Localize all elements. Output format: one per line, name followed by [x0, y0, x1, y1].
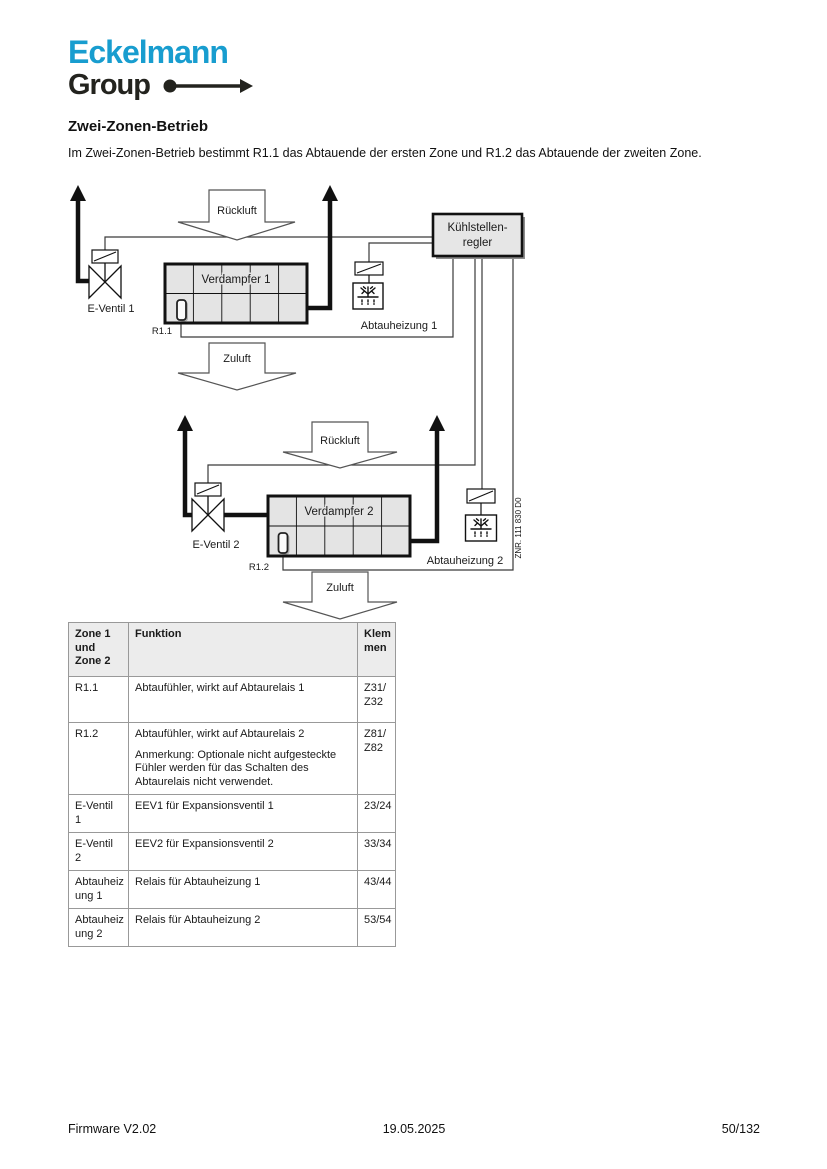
- col-header-funktion: Funktion: [129, 623, 358, 677]
- cell-funktion: Relais für Abtauheizung 1: [129, 871, 358, 909]
- cell-zone: Abtauheiz ung 2: [69, 909, 129, 947]
- zone1-left-pipe: [70, 185, 89, 281]
- cell-klemmen: Z31/ Z32: [358, 677, 396, 723]
- manual-page: { "logo": { "line1": "Eckelmann", "line2…: [0, 0, 827, 1169]
- col-header-klemmen: Klem men: [358, 623, 396, 677]
- logo-group-text: Group: [68, 71, 150, 100]
- zone1-right-pipe: [306, 185, 338, 308]
- wire-heater1: [369, 243, 433, 262]
- zone1-evaporator-label: Verdampfer 1: [201, 274, 270, 286]
- cell-zone: R1.2: [69, 723, 129, 795]
- table-header-row: Zone 1 und Zone 2 Funktion Klem men: [69, 623, 396, 677]
- zone2-expansion-valve-icon: [192, 483, 224, 531]
- cell-zone: R1.1: [69, 677, 129, 723]
- logo-eckelmann-text: Eckelmann: [68, 36, 254, 68]
- case-controller-box: Kühlstellen- regler: [433, 214, 525, 259]
- cell-klemmen: 33/34: [358, 833, 396, 871]
- table-row: Abtauheiz ung 1 Relais für Abtauheizung …: [69, 871, 396, 909]
- cell-klemmen: 23/24: [358, 795, 396, 833]
- zone2-evaporator: Verdampfer 2: [268, 496, 410, 556]
- zone1-return-air-label: Rückluft: [217, 205, 257, 217]
- zone2-supply-air-arrow: Zuluft: [283, 572, 397, 619]
- controller-label-line2: regler: [463, 237, 493, 249]
- zone1-supply-air-arrow: Zuluft: [178, 343, 296, 390]
- two-zone-diagram-svg: E-Ventil 1 Verdampfer 1 R1.1 Rückluft Zu…: [55, 182, 545, 628]
- zone1-defrost-sensor-icon: [177, 300, 186, 320]
- funktion-text: Abtaufühler, wirkt auf Abtaurelais 2: [135, 728, 351, 742]
- funktion-text: Relais für Abtauheizung 2: [135, 914, 351, 928]
- footer-date: 19.05.2025: [299, 1122, 530, 1136]
- table-row: Abtauheiz ung 2 Relais für Abtauheizung …: [69, 909, 396, 947]
- cell-funktion: EEV2 für Expansionsventil 2: [129, 833, 358, 871]
- two-zone-diagram: E-Ventil 1 Verdampfer 1 R1.1 Rückluft Zu…: [55, 182, 545, 628]
- cell-zone: E-Ventil 2: [69, 833, 129, 871]
- table-row: R1.2 Abtaufühler, wirkt auf Abtaurelais …: [69, 723, 396, 795]
- section-title: Zwei-Zonen-Betrieb: [68, 118, 208, 135]
- cell-klemmen: 53/54: [358, 909, 396, 947]
- cell-funktion: Relais für Abtauheizung 2: [129, 909, 358, 947]
- zone2-right-pipe: [409, 415, 445, 541]
- col-header-zone: Zone 1 und Zone 2: [69, 623, 129, 677]
- cell-klemmen: Z81/ Z82: [358, 723, 396, 795]
- zone1-sensor-label: R1.1: [152, 326, 172, 337]
- cell-funktion: EEV1 für Expansionsventil 1: [129, 795, 358, 833]
- zone2-sensor-label: R1.2: [249, 562, 269, 573]
- zone1-return-air-arrow: Rückluft: [178, 190, 295, 240]
- terminal-assignment-table: Zone 1 und Zone 2 Funktion Klem men R1.1…: [68, 622, 396, 947]
- table-row: R1.1 Abtaufühler, wirkt auf Abtaurelais …: [69, 677, 396, 723]
- funktion-text: Abtaufühler, wirkt auf Abtaurelais 1: [135, 682, 351, 696]
- cell-zone: E-Ventil 1: [69, 795, 129, 833]
- zone2-valve-label: E-Ventil 2: [192, 539, 239, 551]
- zone2-return-air-label: Rückluft: [320, 435, 360, 447]
- zone1-supply-air-label: Zuluft: [223, 353, 251, 365]
- pipe-arrow-up-icon: [322, 185, 338, 201]
- zone2-evaporator-label: Verdampfer 2: [304, 506, 373, 518]
- page-footer: Firmware V2.02 19.05.2025 50/132: [68, 1122, 760, 1136]
- zone1-heater-label: Abtauheizung 1: [361, 320, 437, 332]
- pipe-arrow-up-icon: [70, 185, 86, 201]
- footer-page-number: 50/132: [529, 1122, 760, 1136]
- zone2-return-air-arrow: Rückluft: [283, 422, 397, 468]
- company-logo: Eckelmann Group: [68, 36, 254, 100]
- funktion-note: Anmerkung: Optionale nicht aufgesteckte …: [135, 749, 351, 790]
- funktion-text: EEV1 für Expansionsventil 1: [135, 800, 351, 814]
- zone2-heater-label: Abtauheizung 2: [427, 555, 503, 567]
- cell-klemmen: 43/44: [358, 871, 396, 909]
- cell-zone: Abtauheiz ung 1: [69, 871, 129, 909]
- drawing-number: ZNR. 111 830 D0: [514, 497, 523, 559]
- cell-funktion: Abtaufühler, wirkt auf Abtaurelais 2 Anm…: [129, 723, 358, 795]
- table-row: E-Ventil 2 EEV2 für Expansionsventil 2 3…: [69, 833, 396, 871]
- zone2-supply-air-label: Zuluft: [326, 582, 354, 594]
- zone1-evaporator: Verdampfer 1: [165, 264, 307, 323]
- funktion-text: EEV2 für Expansionsventil 2: [135, 838, 351, 852]
- pipe-arrow-up-icon: [177, 415, 193, 431]
- zone1-valve-label: E-Ventil 1: [87, 303, 134, 315]
- footer-firmware-version: Firmware V2.02: [68, 1122, 299, 1136]
- funktion-text: Relais für Abtauheizung 1: [135, 876, 351, 890]
- table-row: E-Ventil 1 EEV1 für Expansionsventil 1 2…: [69, 795, 396, 833]
- zone2-left-pipe: [177, 415, 193, 515]
- zone1-expansion-valve-icon: [89, 250, 121, 298]
- zone2-defrost-sensor-icon: [279, 533, 288, 553]
- cell-funktion: Abtaufühler, wirkt auf Abtaurelais 1: [129, 677, 358, 723]
- controller-label-line1: Kühlstellen-: [447, 222, 507, 234]
- dot-long-arrow-right-icon: [162, 76, 254, 96]
- pipe-arrow-up-icon: [429, 415, 445, 431]
- intro-paragraph: Im Zwei-Zonen-Betrieb bestimmt R1.1 das …: [68, 144, 768, 163]
